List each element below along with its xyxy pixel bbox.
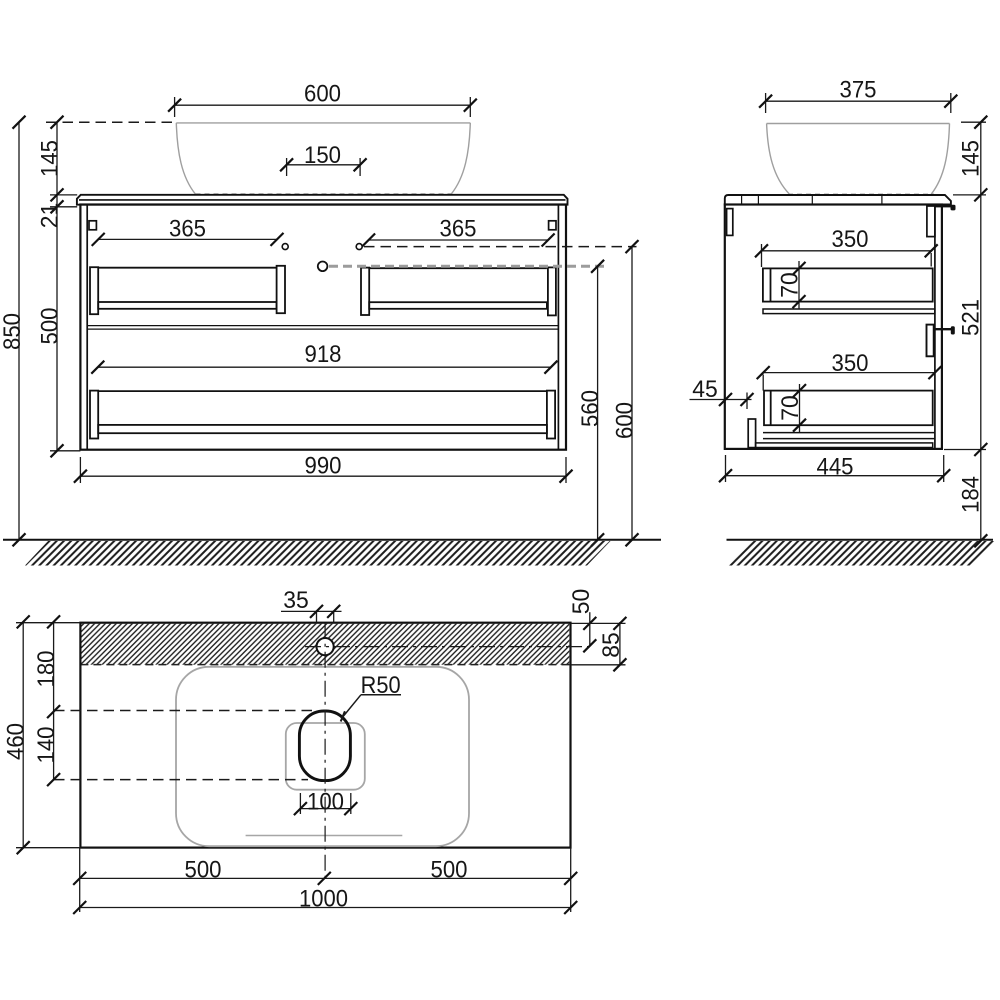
svg-text:600: 600 <box>611 402 638 439</box>
svg-text:918: 918 <box>305 341 342 368</box>
svg-text:521: 521 <box>958 299 985 336</box>
svg-text:365: 365 <box>440 216 477 243</box>
svg-text:600: 600 <box>304 81 341 108</box>
svg-text:70: 70 <box>777 272 804 298</box>
svg-text:365: 365 <box>169 216 206 243</box>
svg-text:1000: 1000 <box>299 886 348 913</box>
svg-text:45: 45 <box>692 376 718 403</box>
svg-text:350: 350 <box>832 226 869 253</box>
svg-text:85: 85 <box>598 632 625 658</box>
svg-text:990: 990 <box>305 453 342 480</box>
svg-text:145: 145 <box>37 140 64 177</box>
svg-text:100: 100 <box>307 789 344 816</box>
svg-text:850: 850 <box>0 313 26 350</box>
svg-text:500: 500 <box>185 857 222 884</box>
svg-text:50: 50 <box>568 589 595 615</box>
svg-text:140: 140 <box>33 727 60 764</box>
svg-text:184: 184 <box>958 476 985 513</box>
svg-text:180: 180 <box>33 651 60 688</box>
svg-text:150: 150 <box>304 142 341 169</box>
svg-text:445: 445 <box>817 454 854 481</box>
svg-text:21: 21 <box>37 203 64 229</box>
svg-text:500: 500 <box>431 857 468 884</box>
svg-text:560: 560 <box>577 390 604 427</box>
svg-text:375: 375 <box>840 77 877 104</box>
svg-text:500: 500 <box>37 308 64 345</box>
svg-text:70: 70 <box>777 395 804 421</box>
svg-text:460: 460 <box>2 723 29 760</box>
svg-text:35: 35 <box>283 587 309 614</box>
svg-text:350: 350 <box>832 350 869 377</box>
svg-text:145: 145 <box>958 140 985 177</box>
